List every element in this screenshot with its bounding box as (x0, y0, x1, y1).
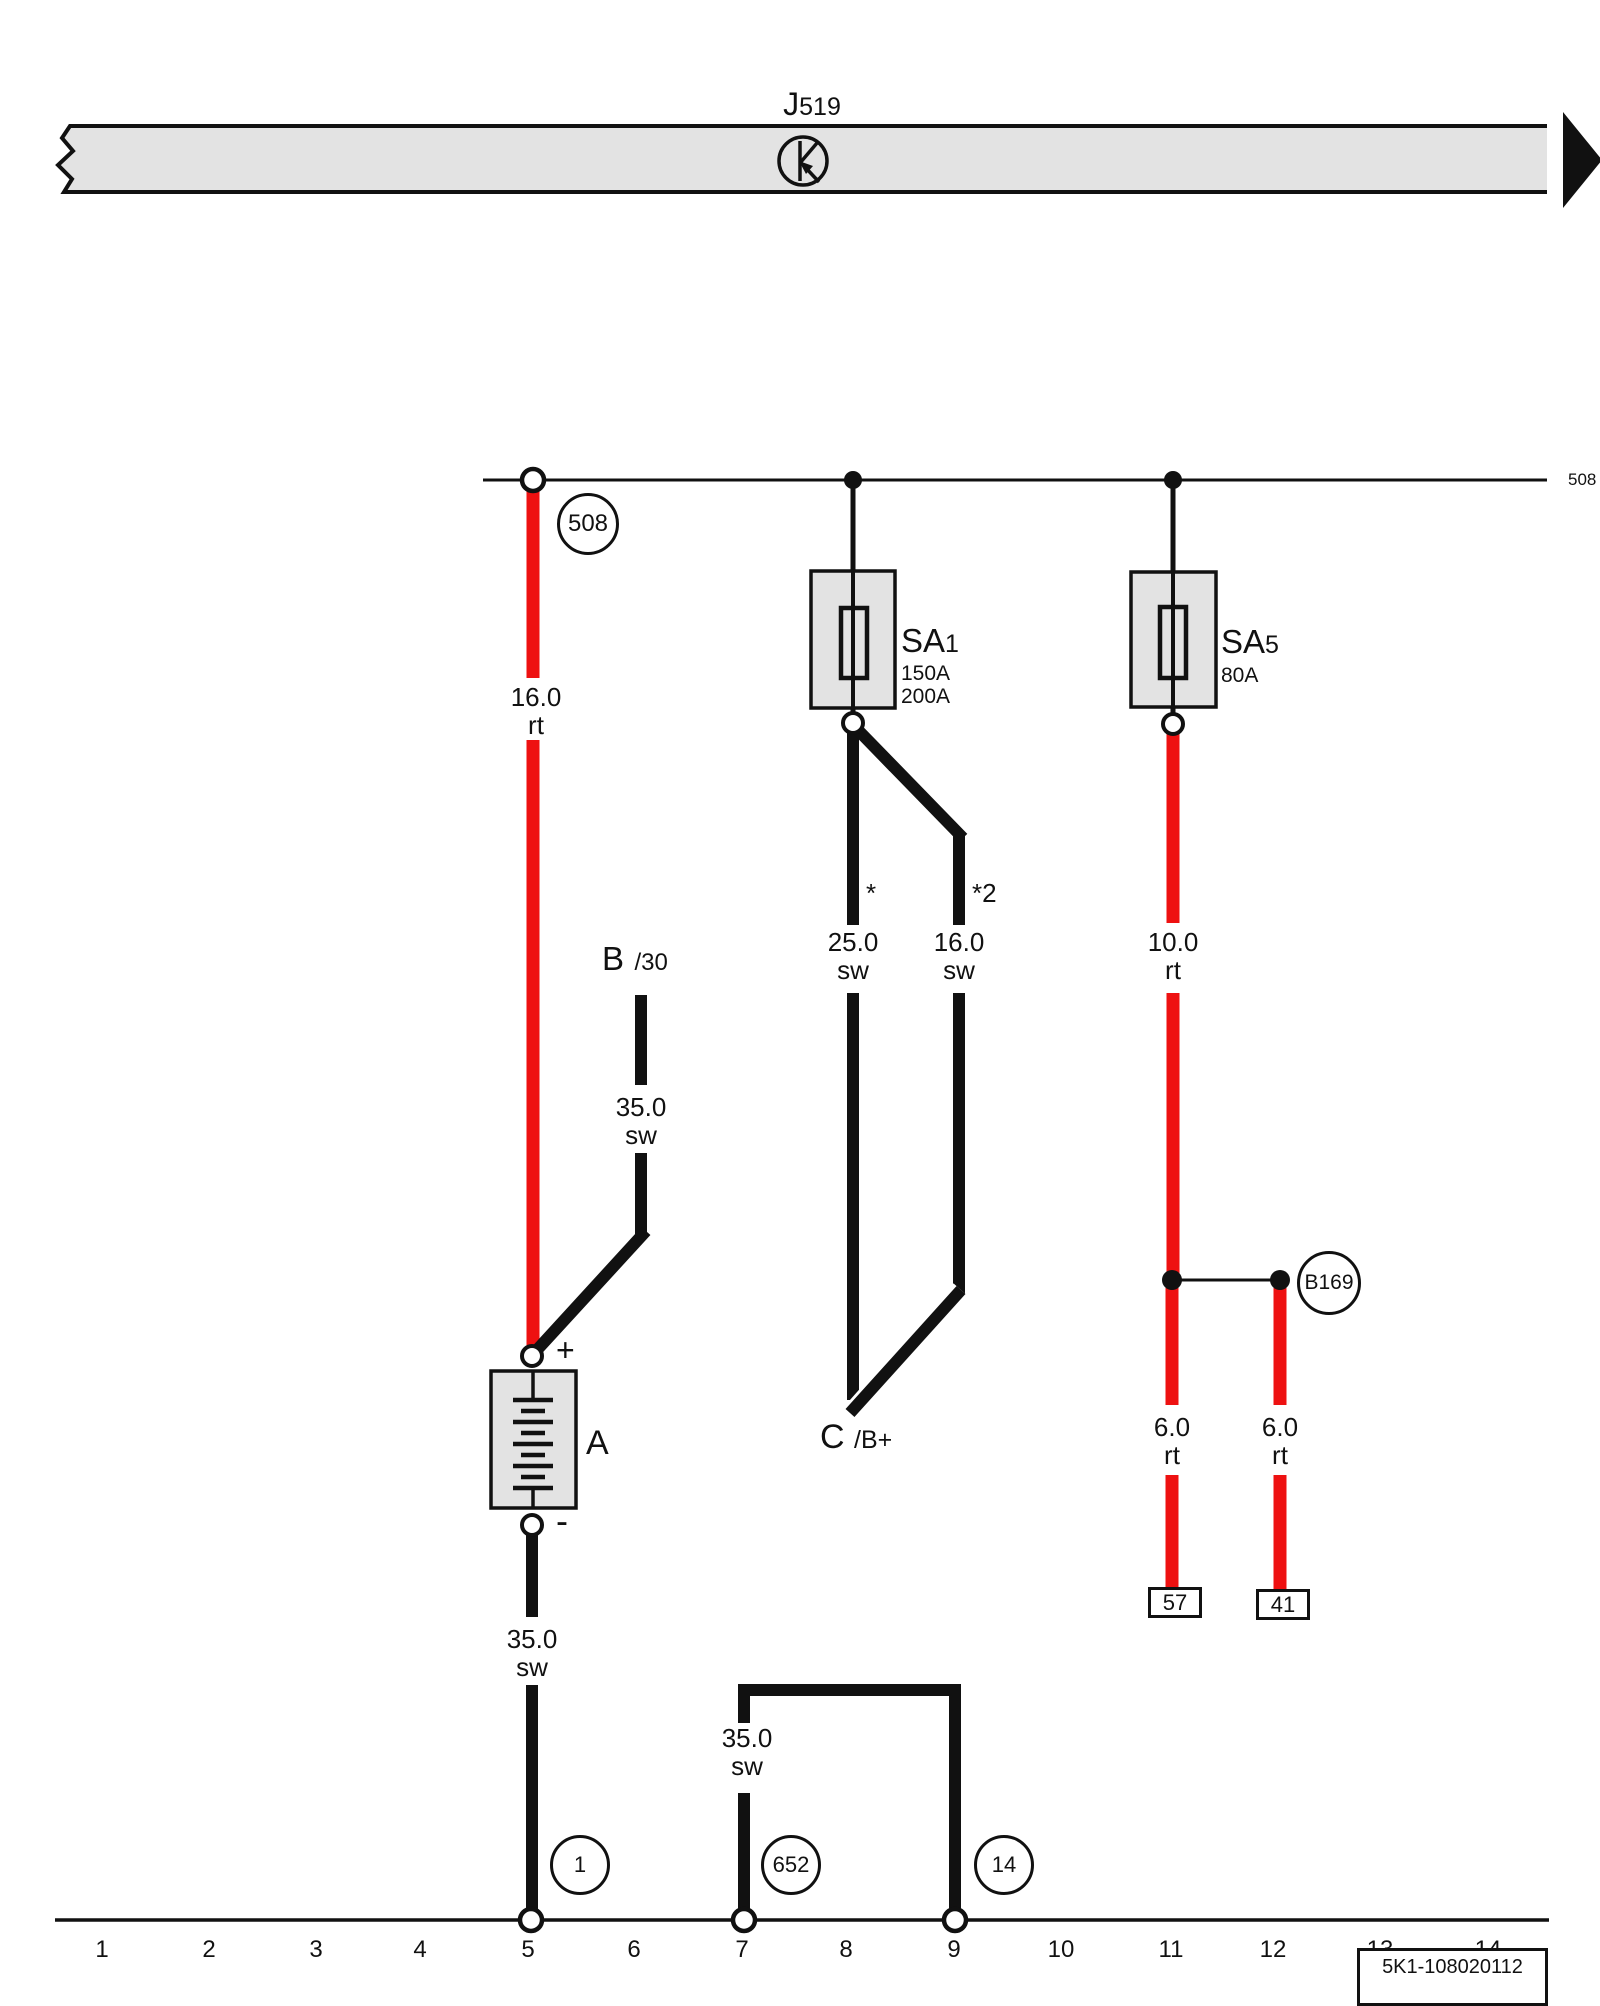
fuse-sa5-rating1: 80A (1221, 664, 1279, 687)
document-id: 5K1-108020112 (1382, 1956, 1523, 2003)
ground-node-5 (520, 1909, 542, 1931)
wire-gauge: 10.0 (1148, 928, 1199, 956)
grid-number-2: 2 (202, 1936, 215, 1964)
wire-color: sw (507, 1653, 558, 1681)
grid-number-4: 4 (413, 1936, 426, 1964)
terminal-box-41: 41 (1256, 1589, 1310, 1620)
fuse-sa5-prefix: SA (1221, 623, 1265, 660)
grid-number-7: 7 (735, 1936, 748, 1964)
terminal-41-label: 41 (1271, 1592, 1295, 1618)
wire-note-star2: *2 (972, 878, 997, 909)
wire-gauge: 35.0 (722, 1724, 773, 1752)
b169-node-right (1270, 1270, 1290, 1290)
wire-label-35sw-b30: 35.0 sw (616, 1093, 667, 1149)
terminal-box-57: 57 (1148, 1587, 1202, 1618)
fuse-sa1-label: SA1 150A 200A (901, 622, 959, 708)
terminal-bplus-label: C /B+ (820, 1418, 892, 1457)
wire-label-6rt-a: 6.0 rt (1154, 1413, 1190, 1469)
module-name: J (783, 86, 799, 122)
wire-gauge: 16.0 (511, 683, 562, 711)
wire-gauge: 6.0 (1154, 1413, 1190, 1441)
track-circle-508-label: 508 (568, 510, 608, 538)
ground-circle-652: 652 (761, 1835, 821, 1895)
wire-16sw-diag-lower (850, 1290, 961, 1413)
fuse-sa1-prefix: SA (901, 622, 945, 659)
ground-14-label: 14 (992, 1852, 1016, 1878)
rail-node-sa1 (844, 471, 862, 489)
terminal-bplus-sub: /B+ (854, 1426, 892, 1454)
battery-plus-node (522, 1346, 542, 1366)
ground-node-9 (944, 1909, 966, 1931)
rail-node-open (522, 469, 544, 491)
grid-number-5: 5 (521, 1936, 534, 1964)
module-sub: 519 (799, 93, 841, 121)
battery-minus-node (522, 1515, 542, 1535)
continuation-arrow-icon (1563, 112, 1600, 208)
b169-node-left (1162, 1270, 1182, 1290)
document-id-box: 5K1-108020112 (1357, 1948, 1548, 2006)
wire-color: rt (1154, 1441, 1190, 1469)
wire-color: sw (722, 1752, 773, 1780)
ground-1-label: 1 (574, 1852, 586, 1878)
sa1-output-node (843, 713, 863, 733)
track-circle-508: 508 (557, 493, 619, 555)
fuse-sa1-rating1: 150A (901, 662, 959, 685)
ground-circle-14: 14 (974, 1835, 1034, 1895)
terminal-b30-main: B (602, 940, 624, 977)
wire-gauge: 35.0 (507, 1625, 558, 1653)
wire-label-35sw-gnd: 35.0 sw (507, 1625, 558, 1681)
grid-number-1: 1 (95, 1936, 108, 1964)
wire-16sw-diag-upper (855, 727, 963, 838)
wire-color: sw (616, 1121, 667, 1149)
module-label: J519 (783, 86, 841, 123)
ground-node-7 (733, 1909, 755, 1931)
wiring-diagram: J519 508 508 16.0 rt SA1 150A 200A SA5 8… (0, 0, 1600, 2000)
grid-number-11: 11 (1159, 1936, 1184, 1964)
wire-color: rt (511, 711, 562, 739)
grid-number-8: 8 (839, 1936, 852, 1964)
terminal-b30-label: B /30 (602, 940, 668, 978)
wire-color: sw (934, 956, 985, 984)
diagram-graphics (0, 0, 1600, 2000)
wire-label-10rt: 10.0 rt (1148, 928, 1199, 984)
battery-minus-label: - (556, 1500, 568, 1542)
grid-number-3: 3 (309, 1936, 322, 1964)
wire-gauge: 16.0 (934, 928, 985, 956)
battery-plus-label: + (556, 1332, 575, 1369)
wire-gauge: 35.0 (616, 1093, 667, 1121)
junction-circle-b169: B169 (1297, 1251, 1361, 1315)
fuse-sa1-rating2: 200A (901, 685, 959, 708)
wire-color: rt (1262, 1441, 1298, 1469)
junction-b169-label: B169 (1304, 1271, 1353, 1295)
wire-gauge: 25.0 (828, 928, 879, 956)
ground-circle-1: 1 (550, 1835, 610, 1895)
wire-b30-diagonal (536, 1231, 646, 1351)
grid-number-6: 6 (627, 1936, 640, 1964)
grid-number-10: 10 (1048, 1936, 1075, 1964)
wire-label-35sw-loop: 35.0 sw (722, 1724, 773, 1780)
terminal-b30-sub: /30 (634, 949, 667, 976)
wire-color: sw (828, 956, 879, 984)
rail-number-right: 508 (1568, 470, 1596, 490)
fuse-sa1-sub: 1 (945, 630, 959, 658)
terminal-57-label: 57 (1163, 1590, 1187, 1616)
ground-652-label: 652 (773, 1852, 810, 1878)
fuse-sa5-label: SA5 80A (1221, 623, 1279, 687)
wire-label-16sw: 16.0 sw (934, 928, 985, 984)
fuse-sa5-sub: 5 (1265, 631, 1279, 659)
grid-number-9: 9 (947, 1936, 960, 1964)
wire-gauge: 6.0 (1262, 1413, 1298, 1441)
wire-label-25sw: 25.0 sw (828, 928, 879, 984)
terminal-bplus-main: C (820, 1418, 845, 1456)
rail-node-sa5 (1164, 471, 1182, 489)
wire-note-star: * (866, 878, 876, 909)
grid-number-12: 12 (1260, 1936, 1287, 1964)
sa5-output-node (1163, 714, 1183, 734)
wire-label-16rt: 16.0 rt (511, 683, 562, 739)
wire-color: rt (1148, 956, 1199, 984)
wire-label-6rt-b: 6.0 rt (1262, 1413, 1298, 1469)
battery-name-label: A (586, 1424, 609, 1463)
